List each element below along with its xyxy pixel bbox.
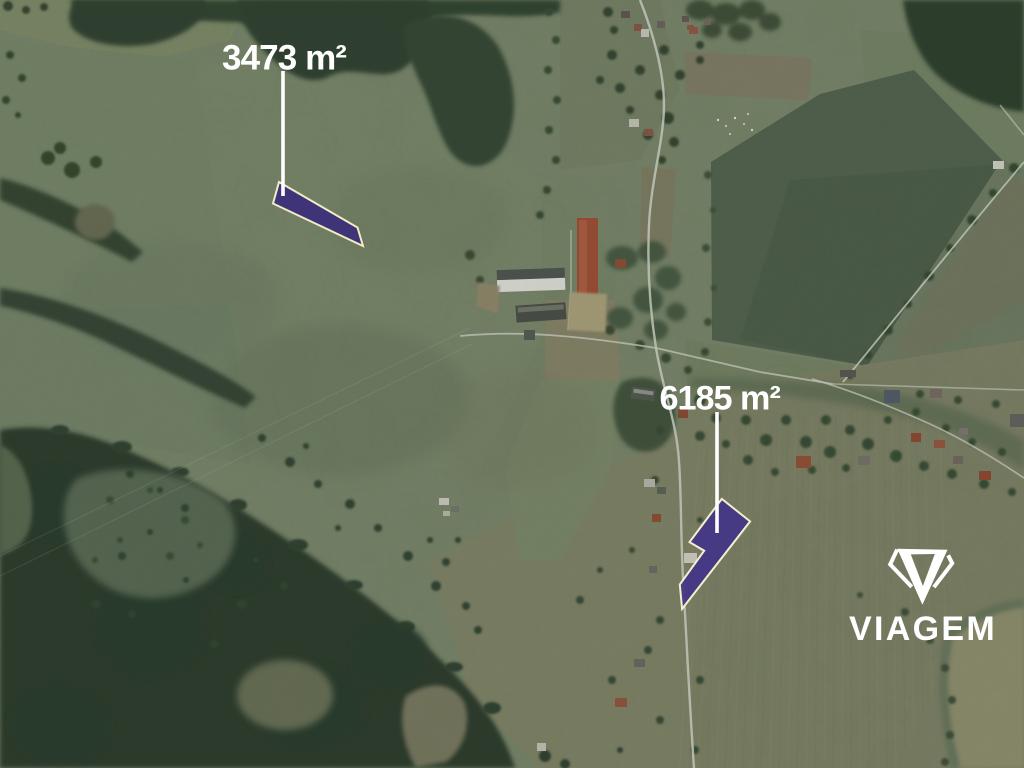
svg-text:VIAGEM: VIAGEM — [849, 610, 997, 648]
svg-text:3473 m²: 3473 m² — [222, 39, 346, 78]
svg-text:6185 m²: 6185 m² — [660, 380, 781, 418]
